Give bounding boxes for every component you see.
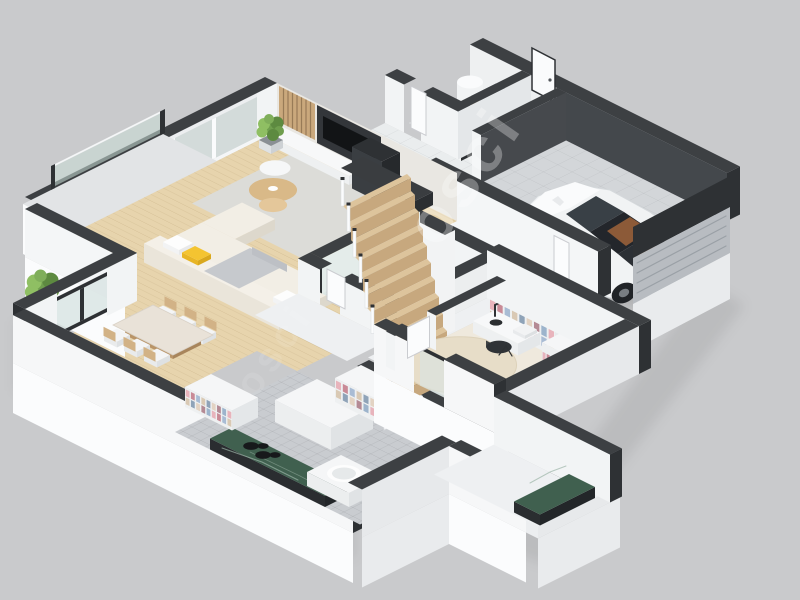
garage-south-wall-se (598, 245, 611, 300)
balustrade-post (51, 164, 55, 190)
water-heater-top (457, 76, 483, 89)
stair-balustrade-post (365, 282, 368, 308)
living-room-plant-leaf (267, 129, 279, 141)
stair-balustrade-post-cap (359, 254, 363, 257)
balustrade-post (160, 109, 165, 136)
desk-bowl (490, 319, 503, 325)
dining-window-plant-leaf (34, 270, 47, 283)
stair-balustrade-post (371, 308, 374, 334)
stair-balustrade-post (341, 180, 344, 206)
south-hall-wall-se (610, 449, 622, 503)
dining-window-mullion (80, 288, 84, 322)
stair-balustrade-post-cap (365, 279, 369, 282)
white-side-table (259, 160, 290, 176)
office-west-wall-b-sw (386, 332, 395, 372)
office-ne-wall-se (639, 320, 651, 374)
stair-balustrade-post (353, 231, 356, 257)
cooktop-burner (257, 443, 268, 449)
cooktop-burner (255, 451, 271, 459)
cooktop-burner (243, 442, 259, 450)
floor-plan-viewport: osci osci (0, 0, 800, 600)
coffee-table-decor (268, 186, 278, 191)
kitchen-sink-basin (332, 467, 356, 479)
glass-door-mullion (212, 118, 216, 160)
cooktop-burner (269, 452, 280, 458)
floor-plan-render: osci osci (0, 0, 800, 600)
utility-south-wall-face-a (385, 75, 404, 133)
stair-balustrade-post-cap (347, 203, 351, 206)
utility-door-leaf (411, 86, 426, 136)
front-door-knob (548, 78, 551, 81)
stair-balustrade-post (359, 257, 362, 283)
stair-balustrade-post (347, 206, 350, 232)
stair-balustrade-post-cap (341, 177, 345, 180)
coffee-table-lower-tier (259, 198, 287, 212)
living-room-plant-leaf (264, 114, 274, 124)
stair-balustrade-post-cap (353, 228, 357, 231)
living-room-plant-leaf (257, 127, 268, 138)
stair-balustrade-post-cap (371, 305, 375, 308)
